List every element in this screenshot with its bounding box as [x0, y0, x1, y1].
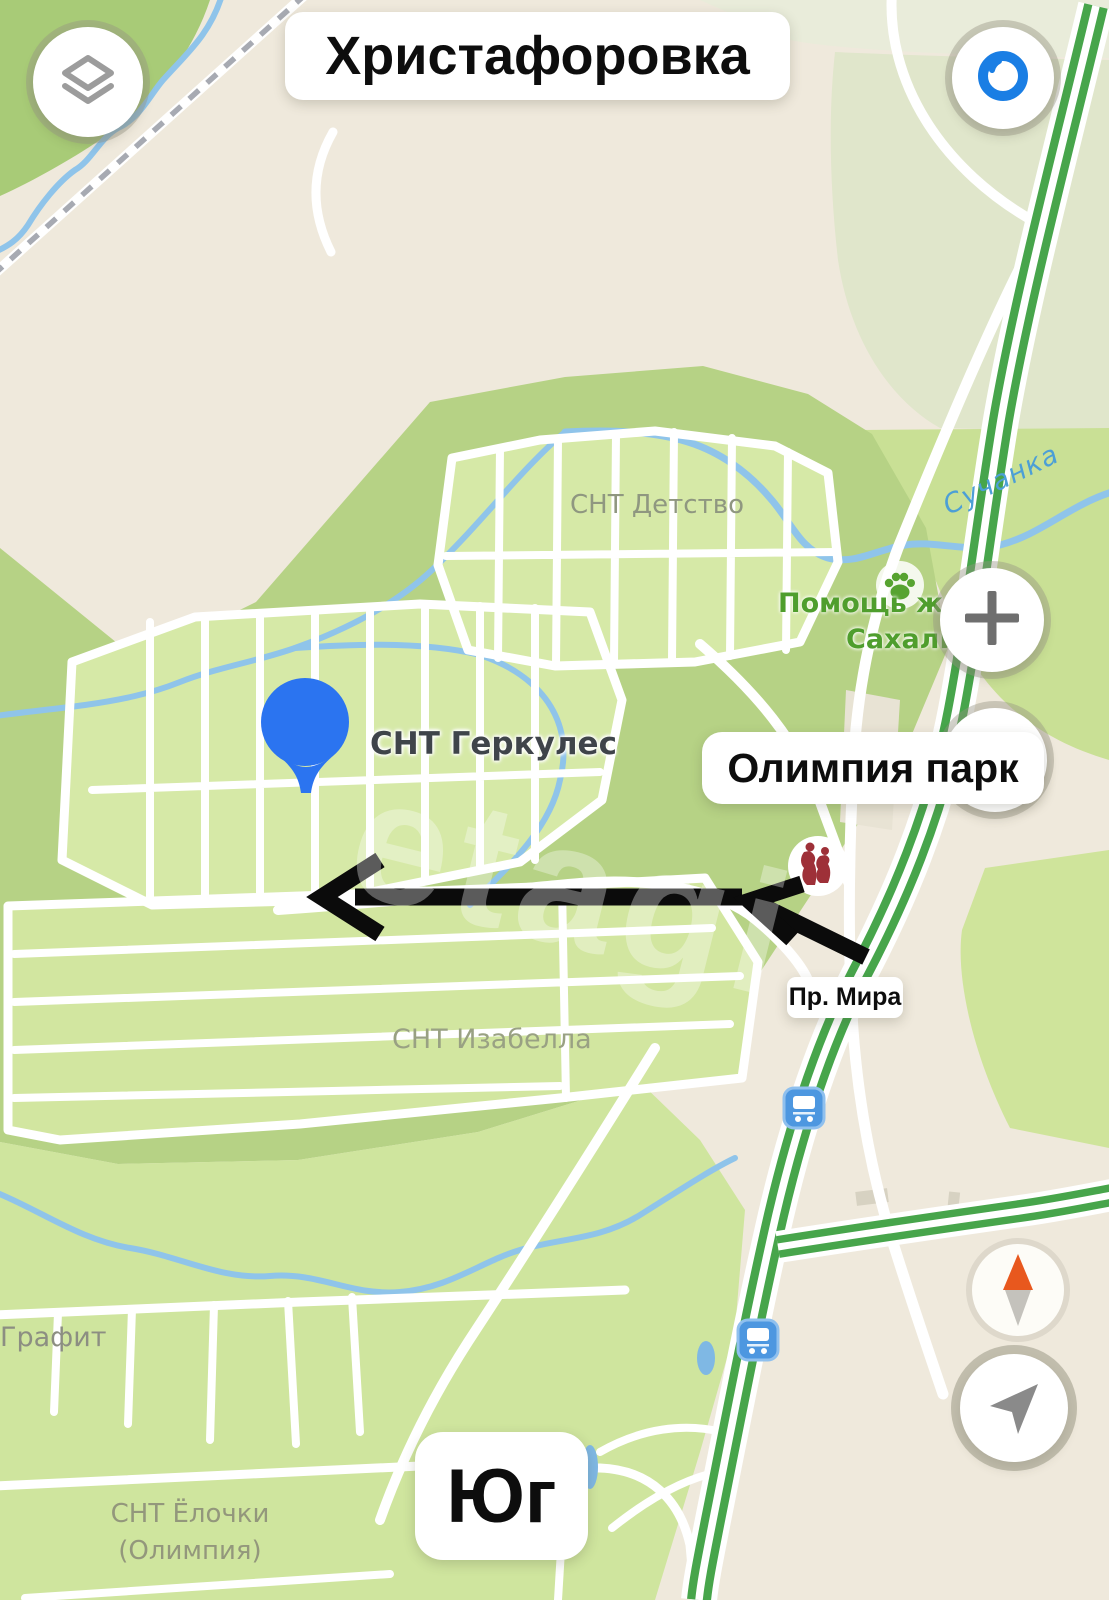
bus-stop-icon[interactable]: [738, 1320, 778, 1360]
blue-dial-icon: [974, 47, 1032, 110]
street-name-pill: Пр. Мира: [787, 977, 903, 1018]
zoom-in-button[interactable]: [940, 568, 1044, 672]
compass-needle-button[interactable]: [972, 1244, 1064, 1336]
compass-mode-button[interactable]: [952, 27, 1054, 129]
map-screen: etagi СНТ Детство СНТ Геркулес СНТ Изабе…: [0, 0, 1109, 1600]
label-snt-yolochki-line1: СНТ Ёлочки: [111, 1499, 270, 1529]
layers-icon: [56, 48, 120, 117]
label-snt-izabella: СНТ Изабелла: [392, 1024, 592, 1055]
label-snt-gerkules: СНТ Геркулес: [370, 726, 617, 762]
compass-needle-icon: [972, 1242, 1064, 1339]
bus-stop-icon[interactable]: [784, 1088, 824, 1128]
district-south-pill: Юг: [415, 1432, 588, 1560]
settlement-title-pill: Христафоровка: [285, 12, 790, 100]
park-name-pill: Олимпия парк: [702, 732, 1044, 804]
label-snt-yolochki-line2: (Олимпия): [118, 1536, 261, 1566]
label-grafit: Графит: [0, 1322, 107, 1353]
label-snt-yolochki: СНТ Ёлочки (Олимпия): [95, 1496, 285, 1570]
layers-button[interactable]: [33, 27, 143, 137]
plus-icon: [962, 588, 1022, 653]
locate-button[interactable]: [960, 1354, 1068, 1462]
navigation-arrow-icon: [976, 1368, 1052, 1449]
label-snt-detstvo: СНТ Детство: [570, 490, 744, 520]
label-poi-animal-help-line1: Помощь жи: [778, 588, 962, 619]
